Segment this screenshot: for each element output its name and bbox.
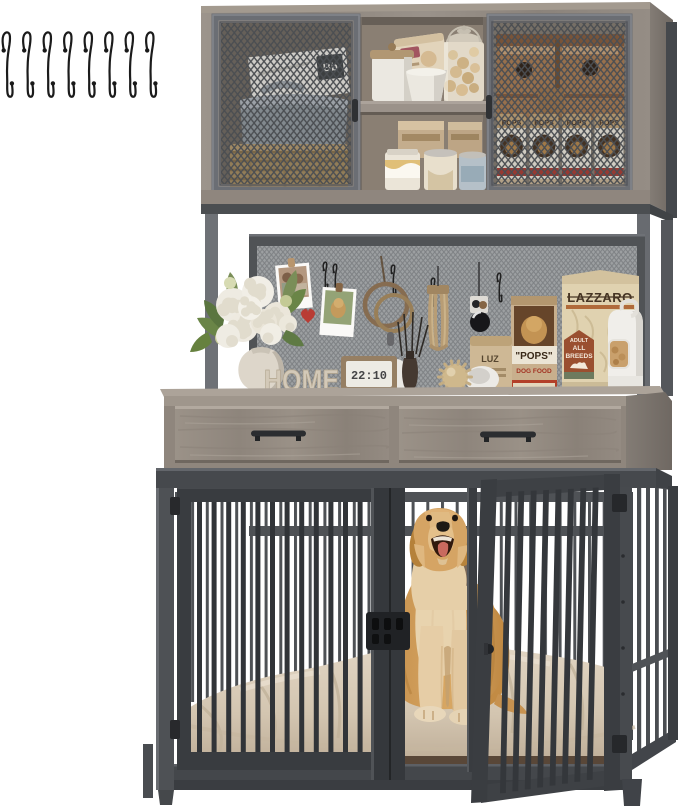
svg-text:ALL: ALL xyxy=(573,345,586,352)
svg-text:"POPS": "POPS" xyxy=(515,351,553,362)
svg-text:ADULT: ADULT xyxy=(570,338,589,344)
svg-text:LUZ: LUZ xyxy=(481,354,499,364)
svg-text:BREEDS: BREEDS xyxy=(565,353,593,360)
svg-text:DOG FOOD: DOG FOOD xyxy=(516,368,552,375)
svg-text:22:10: 22:10 xyxy=(351,369,387,383)
